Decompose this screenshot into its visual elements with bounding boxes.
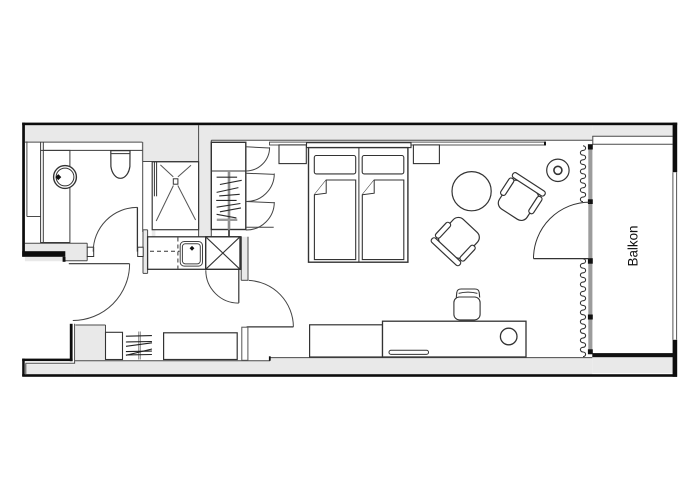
svg-text:Balkon: Balkon bbox=[626, 226, 641, 267]
